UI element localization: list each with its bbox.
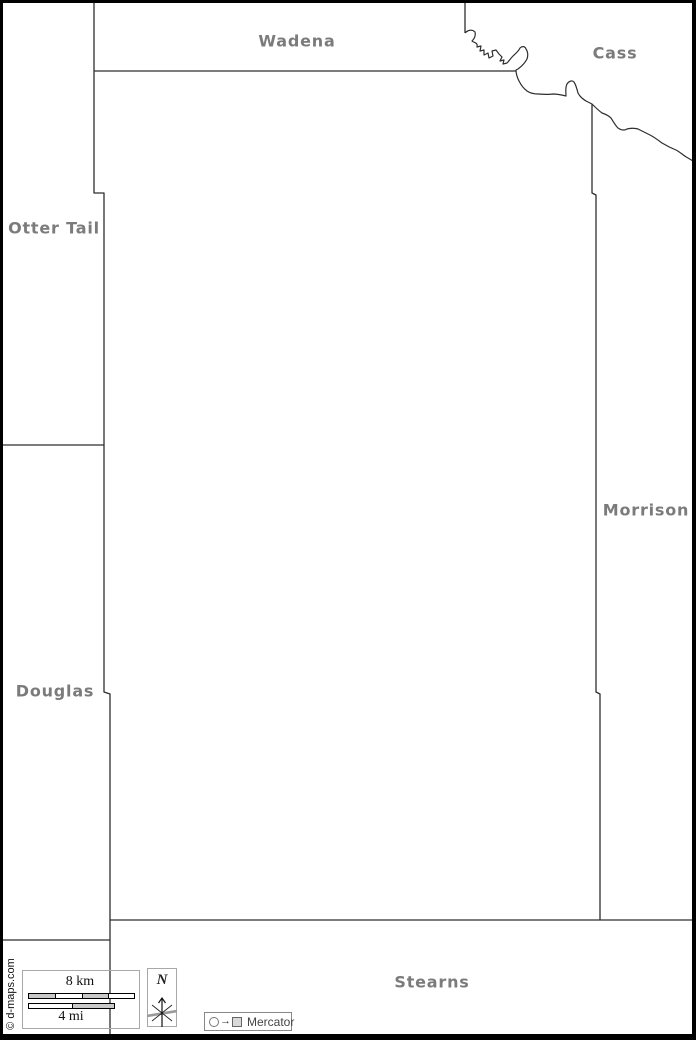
copyright-credit: © d-maps.com [5,958,17,1030]
scale-segment [29,994,55,998]
river-boundary-line [465,30,693,161]
globe-icon [209,1017,219,1027]
scale-km-label: 8 km [66,974,94,990]
west-border-line [94,3,110,1034]
projection-label: Mercator [247,1015,294,1029]
county-label-douglas: Douglas [16,682,95,701]
north-letter: N [157,972,168,989]
scale-segment [82,994,108,998]
flat-map-icon [232,1017,242,1027]
north-indicator-box: N [147,968,177,1027]
scale-segment [108,994,134,998]
scale-segment [55,994,81,998]
projection-box: → Mercator [204,1012,292,1031]
county-label-wadena: Wadena [258,32,335,51]
arrow-right-icon: → [220,1016,231,1027]
north-arrow-icon [147,989,177,1027]
scale-bar-km [28,993,135,999]
east-border-line [592,104,600,920]
county-label-cass: Cass [593,44,638,63]
boundary-lines-group [3,3,693,1034]
county-label-morrison: Morrison [603,501,690,520]
county-label-otter-tail: Otter Tail [8,219,100,238]
scale-segment [72,1004,115,1008]
county-boundaries-svg [0,0,696,1040]
scale-mi-label: 4 mi [58,1009,83,1025]
scale-segment [29,1004,72,1008]
scale-bar-box: 8 km 4 mi [22,970,140,1029]
map-canvas: Wadena Cass Otter Tail Morrison Douglas … [0,0,696,1040]
county-label-stearns: Stearns [394,973,469,992]
